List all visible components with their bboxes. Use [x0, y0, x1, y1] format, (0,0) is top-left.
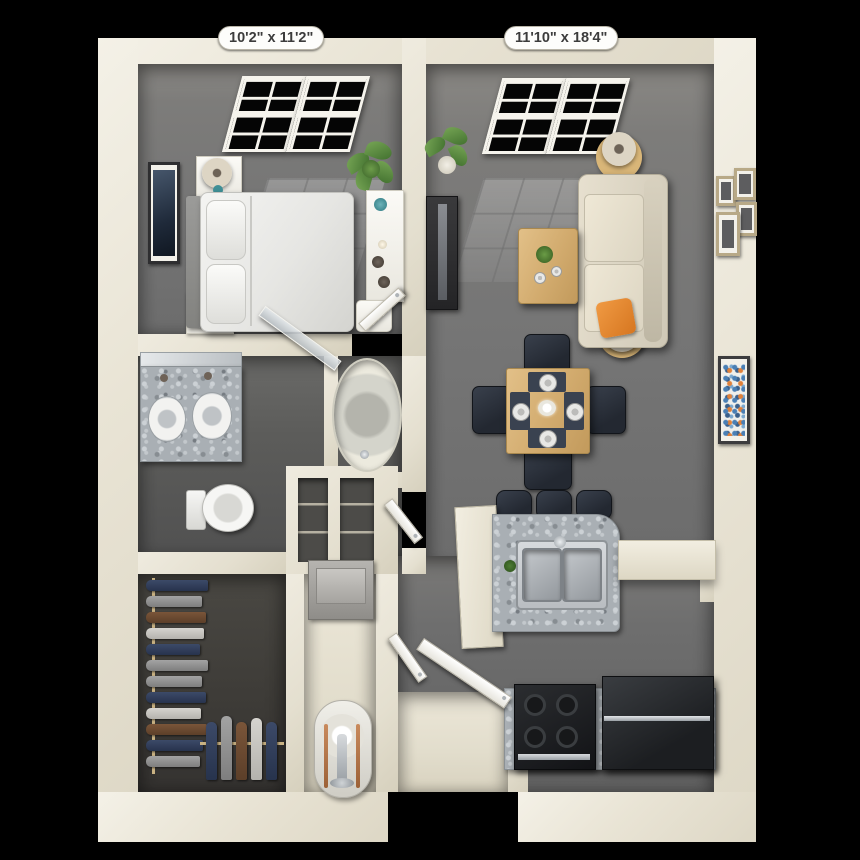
wall-bedroom-living-divider	[402, 38, 426, 356]
clothes-item	[146, 724, 207, 735]
clothes-item	[251, 718, 262, 780]
burner-3	[524, 726, 546, 748]
clothes-item	[146, 580, 208, 591]
gallery-frame-2	[734, 168, 756, 200]
flower-centerpiece	[538, 400, 556, 416]
faucet-right	[204, 372, 212, 380]
living-room-dimension-label: 11'10" x 18'4"	[504, 26, 618, 50]
clothes-item	[146, 740, 203, 751]
bedroom-art-canvas	[153, 170, 176, 256]
clothes-item	[146, 644, 200, 655]
refrigerator	[602, 676, 714, 770]
sink-faucet	[554, 536, 566, 548]
decor-ball-1	[372, 256, 384, 268]
dining-chair-south	[524, 448, 572, 490]
bed-pillow-1	[206, 200, 246, 260]
clothes-item	[146, 660, 208, 671]
door-knob	[394, 292, 400, 298]
toilet-bowl	[202, 484, 254, 532]
brown-vase	[376, 218, 387, 229]
clothes-item	[206, 722, 217, 780]
gallery-frame-1	[716, 176, 736, 206]
clothes-item	[236, 722, 247, 780]
candle	[378, 240, 387, 249]
clothes-item	[146, 676, 202, 687]
white-pot	[438, 156, 456, 174]
duvet-fold-line	[250, 196, 252, 326]
outer-wall-bottom-right	[518, 792, 756, 842]
coffee-table-dish-2	[551, 266, 562, 277]
window-rail	[232, 111, 296, 117]
wall-bath-hall-upper	[402, 356, 426, 492]
copper-pipe-left	[324, 724, 328, 788]
outer-wall-top	[98, 38, 756, 64]
clothes-item	[146, 692, 206, 703]
refrigerator-handle-bar	[604, 716, 710, 721]
bedroom-wall-art	[148, 162, 180, 264]
clothes-item	[146, 612, 206, 623]
dining-wall-art	[718, 356, 750, 444]
nightstand-lamp-top	[202, 158, 232, 188]
linen-niche-left	[298, 478, 328, 562]
coffee-table	[518, 228, 578, 304]
plant-center	[362, 160, 380, 178]
clothes-item	[146, 628, 204, 639]
plate-east	[566, 403, 584, 421]
plate-west	[512, 403, 530, 421]
burner-4	[556, 726, 578, 748]
wall-bathroom-closet	[138, 552, 290, 574]
gallery-photo	[739, 174, 750, 194]
breakfast-bar-shelf	[618, 540, 716, 580]
dining-chair-east	[586, 386, 626, 434]
orange-pillow-1	[596, 210, 632, 246]
sink-basin-right	[562, 548, 602, 602]
door-knob	[413, 533, 419, 539]
coffee-table-dish-1	[534, 272, 546, 284]
gallery-photo	[721, 182, 731, 200]
door-knob	[417, 672, 423, 678]
wall-bath-hall-lower	[402, 548, 426, 574]
tub-faucet	[360, 450, 369, 459]
window-rail	[296, 111, 360, 117]
sink-basin-left	[522, 548, 562, 602]
tv-screen	[438, 204, 447, 300]
clothes-item	[146, 708, 201, 719]
linen-niche-right	[340, 478, 374, 562]
counter-plant-sprig	[504, 560, 516, 572]
orange-pillow-2	[595, 297, 637, 339]
wall-closet-utility	[286, 574, 304, 792]
gallery-photo	[741, 208, 752, 229]
entry-notch-outside	[388, 792, 518, 860]
plate-north	[539, 374, 557, 392]
laundry-access-panel	[316, 568, 366, 604]
floor-plan-render: 10'2" x 11'2" 11'10" x 18'4"	[0, 0, 860, 860]
vanity-sink-left	[148, 396, 186, 442]
door-knob	[501, 695, 507, 701]
decor-ball-2	[378, 276, 390, 288]
clothes-item	[146, 596, 202, 607]
bed-pillow-2	[206, 264, 246, 324]
plate-south	[539, 430, 557, 448]
bedroom-plant	[344, 140, 398, 194]
wall-utility-hall	[376, 574, 398, 792]
drain-pipe	[337, 734, 347, 782]
burner-2	[556, 694, 578, 716]
teal-vase	[374, 198, 387, 211]
clothes-item	[266, 722, 277, 780]
gallery-photo	[722, 220, 735, 249]
outer-wall-left	[98, 38, 138, 842]
copper-pipe-right	[356, 724, 360, 788]
oven-handle	[518, 754, 590, 760]
window-rail	[492, 113, 556, 119]
end-table-lamp-top	[602, 132, 636, 166]
coffee-table-plant	[536, 246, 553, 263]
clothes-item	[146, 756, 200, 767]
living-plant	[424, 126, 474, 178]
pipe-flange	[330, 778, 354, 788]
entry-floor	[398, 692, 510, 792]
window-rail	[556, 113, 620, 119]
bedroom-dimension-label: 10'2" x 11'2"	[218, 26, 324, 50]
outer-wall-bottom-left	[98, 792, 388, 842]
faucet-left	[160, 374, 168, 382]
sofa-back	[644, 178, 662, 342]
dining-art-canvas	[723, 364, 745, 436]
vanity-mirror	[140, 352, 242, 367]
vanity-sink-right	[192, 392, 232, 440]
burner-1	[524, 694, 546, 716]
gallery-frame-4	[716, 212, 740, 256]
clothes-item	[221, 716, 232, 780]
